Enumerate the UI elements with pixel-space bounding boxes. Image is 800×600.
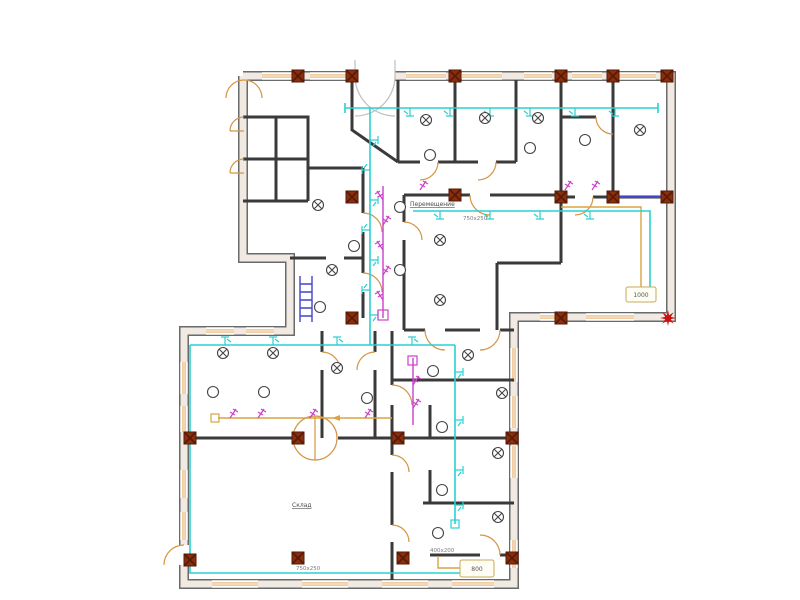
switch-icon xyxy=(375,191,383,200)
wall-outlet-icon xyxy=(395,265,406,276)
column-icon xyxy=(607,191,619,203)
wall-outlet-icon xyxy=(437,422,448,433)
ceiling-lamp-icon xyxy=(327,265,338,276)
ceiling-lamp-icon xyxy=(533,113,544,124)
column-icon xyxy=(449,189,461,201)
ladder-icon xyxy=(300,276,312,322)
wiring-tap-icon xyxy=(404,108,414,116)
column-icon xyxy=(555,312,567,324)
column-icon xyxy=(184,432,196,444)
floor-plan-svg: 1000 800 Перемещение 750х250 Склад 750х2… xyxy=(0,0,800,600)
wiring-tap-icon xyxy=(269,337,279,345)
wall-outlet-icon xyxy=(315,302,326,313)
ceiling-lamp-icon xyxy=(218,348,229,359)
ceiling-lamp-icon xyxy=(463,350,474,361)
ceiling-lamp-icon xyxy=(421,115,432,126)
terminal-label: 1000 xyxy=(633,292,648,299)
switch-icon xyxy=(375,291,383,300)
ceiling-lamp-icon xyxy=(497,388,508,399)
wiring-tap-icon xyxy=(524,108,534,116)
duct-label-bottom: 750х250 xyxy=(296,566,321,572)
wall-outlet-icon xyxy=(580,135,591,146)
ceiling-lamp-icon xyxy=(313,200,324,211)
wall-outlet-icon xyxy=(395,202,406,213)
wiring-tap-icon xyxy=(455,466,463,476)
column-icon xyxy=(555,70,567,82)
column-icon xyxy=(506,432,518,444)
switch-icon xyxy=(413,399,421,408)
wiring-tap-icon xyxy=(455,368,463,378)
wiring-tap-icon xyxy=(221,337,231,345)
room-label-relocation: Перемещение xyxy=(410,201,455,208)
terminal-box-bottom: 800 xyxy=(460,560,494,577)
terminal-box-right: 1000 xyxy=(626,287,656,302)
column-icon xyxy=(449,70,461,82)
wall-outlet-icon xyxy=(259,387,270,398)
switch-icon xyxy=(420,181,428,190)
wiring-taps xyxy=(221,108,619,511)
column-icon xyxy=(292,432,304,444)
switch-icon xyxy=(375,241,383,250)
wall-outlet-icon xyxy=(425,150,436,161)
column-icon xyxy=(555,191,567,203)
switch-icon xyxy=(383,266,391,275)
wiring-tap-icon xyxy=(408,337,418,345)
switch-icon xyxy=(258,409,266,418)
ceiling-lamp-icon xyxy=(493,512,504,523)
column-icon xyxy=(346,70,358,82)
wiring-tap-icon xyxy=(370,256,378,266)
ceiling-lamp-icon xyxy=(493,448,504,459)
ceiling-lamp-icon xyxy=(435,295,446,306)
column-icon xyxy=(392,432,404,444)
wiring-tap-icon xyxy=(370,196,378,206)
corner-marker-icon xyxy=(660,310,676,326)
column-icon xyxy=(346,191,358,203)
wiring-tap-icon xyxy=(534,211,544,219)
wall-outlet-icon xyxy=(525,143,536,154)
ceiling-lamp-icon xyxy=(480,113,491,124)
room-label-storage: Склад xyxy=(292,502,311,509)
duct-label-top: 750х250 xyxy=(463,216,488,222)
wiring-tap-icon xyxy=(569,108,579,116)
wiring-tap-icon xyxy=(333,337,343,345)
wiring-tap-icon xyxy=(455,416,463,426)
column-icon xyxy=(184,554,196,566)
column-icon xyxy=(292,552,304,564)
column-icon xyxy=(506,552,518,564)
wall-outlet-icon xyxy=(428,366,439,377)
column-icon xyxy=(661,70,673,82)
ceiling-lamp-icon xyxy=(435,235,446,246)
column-icon xyxy=(346,312,358,324)
switch-icon xyxy=(365,409,373,418)
wiring-tap-icon xyxy=(444,108,454,116)
terminal-label: 800 xyxy=(471,566,483,573)
wall-outlet-icon xyxy=(208,387,219,398)
ceiling-lamp-icon xyxy=(332,363,343,374)
switch-icon xyxy=(565,181,573,190)
floor-plan-canvas: 1000 800 Перемещение 750х250 Склад 750х2… xyxy=(0,0,800,600)
wiring-tap-icon xyxy=(434,211,444,219)
ceiling-lamp-icon xyxy=(635,125,646,136)
door-arc xyxy=(164,80,613,565)
wall-outlet-icon xyxy=(437,485,448,496)
switch-icon xyxy=(592,181,600,190)
column-icon xyxy=(607,70,619,82)
column-icon xyxy=(397,552,409,564)
wall-outlet-icon xyxy=(349,241,360,252)
switch-box-icon xyxy=(211,414,219,422)
switch-icon xyxy=(383,216,391,225)
duct-arrow-icon xyxy=(332,415,340,421)
ceiling-lamp-icon xyxy=(268,348,279,359)
column-icon xyxy=(292,70,304,82)
switch-icon xyxy=(230,409,238,418)
wall-outlet-icon xyxy=(362,393,373,404)
column-icon xyxy=(661,191,673,203)
duct-label-small: 400х200 xyxy=(430,548,455,554)
wiring-tap-icon xyxy=(370,311,378,321)
wall-outlet-icon xyxy=(433,528,444,539)
